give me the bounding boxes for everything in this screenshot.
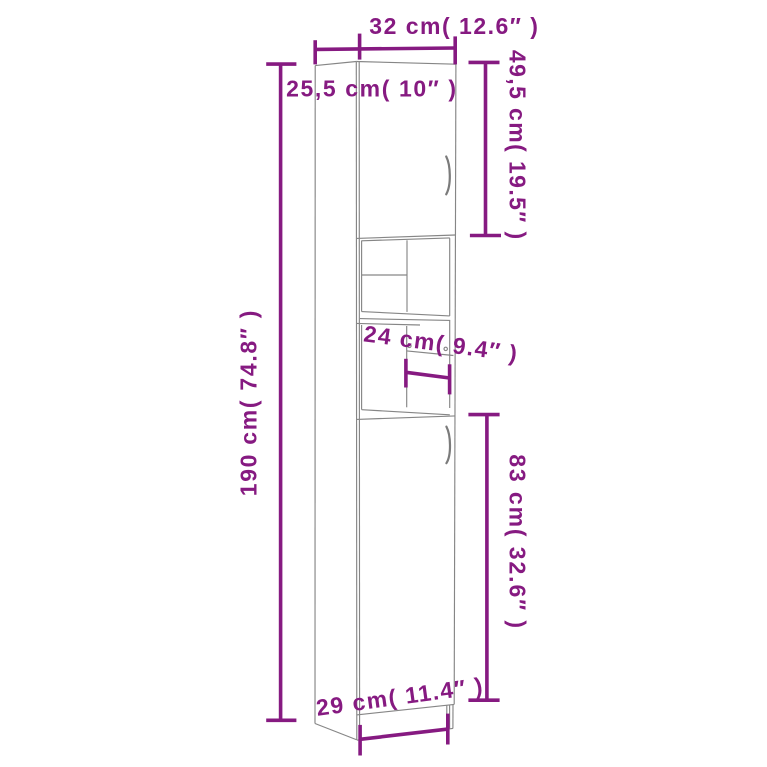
svg-text:190 cm( 74.8″ ): 190 cm( 74.8″ ) [236, 309, 262, 496]
svg-text:32 cm( 12.6″ ): 32 cm( 12.6″ ) [369, 13, 539, 39]
svg-text:25,5 cm( 10″ ): 25,5 cm( 10″ ) [286, 75, 458, 101]
svg-text:83 cm( 32.6″ ): 83 cm( 32.6″ ) [505, 454, 531, 630]
svg-text:49,5 cm( 19.5″ ): 49,5 cm( 19.5″ ) [505, 50, 531, 241]
